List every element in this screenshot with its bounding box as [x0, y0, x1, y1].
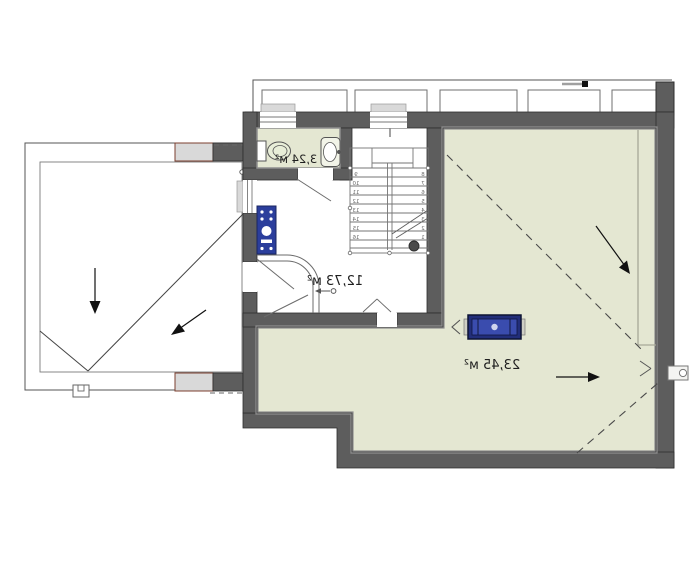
- wall-hall-bottom: [397, 313, 443, 327]
- door-swing-line: [377, 299, 391, 312]
- lower-window-outline: [612, 90, 656, 113]
- window-gap: [260, 112, 296, 128]
- window-gap: [243, 180, 257, 213]
- wall-stair-right: [427, 128, 443, 313]
- wall-stub: [213, 143, 243, 161]
- wall-top: [245, 112, 674, 128]
- hall-area-label: 12,73 м²: [307, 274, 363, 289]
- bathroom-area-label: 3,24 м²: [275, 152, 318, 166]
- step-number: 9: [354, 172, 358, 178]
- drain-scupper: [668, 366, 688, 380]
- door-gap: [243, 262, 257, 292]
- step-number: 1: [421, 235, 425, 241]
- window-gap: [370, 112, 407, 128]
- boiler-dial-icon: [262, 226, 272, 236]
- main-room-area-label: 23,45 м²: [464, 358, 520, 373]
- garage-roof: [25, 143, 245, 397]
- door-swing-line: [363, 299, 377, 312]
- stair-outline: [350, 148, 428, 253]
- door-swing-line: [257, 259, 294, 289]
- dimension-end-marker: [331, 289, 336, 294]
- step-number: 6: [421, 190, 425, 196]
- step-number: 4: [421, 208, 425, 214]
- toilet-tank-icon: [257, 141, 266, 161]
- floor-plan-drawing: 9 10 11 12 13 14 15 16 8 7 6 5 4 3 2 1: [0, 0, 700, 575]
- lower-window-outline: [440, 90, 517, 113]
- washbasin-tap-icon: [337, 150, 341, 154]
- top-band: [253, 80, 674, 115]
- floor-plan-canvas: 9 10 11 12 13 14 15 16 8 7 6 5 4 3 2 1: [0, 0, 700, 575]
- washbasin-bowl-icon: [324, 143, 337, 162]
- step-number: 3: [421, 217, 425, 223]
- boiler-slot-icon: [261, 240, 272, 244]
- wall-right: [656, 112, 674, 468]
- step-number: 8: [421, 172, 425, 178]
- window-sill: [261, 104, 295, 112]
- door-gap: [377, 313, 397, 327]
- drain-scupper-outlet: [679, 369, 686, 376]
- garage-roof-eave: [25, 143, 245, 390]
- wall-corner-block: [656, 82, 674, 115]
- step-number: 11: [353, 190, 360, 196]
- attachment-block: [175, 143, 213, 161]
- boiler: [257, 206, 276, 254]
- attachment-block: [175, 373, 213, 391]
- step-number: 5: [421, 199, 425, 205]
- stair-treads: [350, 168, 428, 248]
- step-number: 7: [421, 181, 425, 187]
- step-number: 14: [352, 217, 359, 223]
- step-number: 15: [352, 226, 359, 232]
- step-number: 10: [352, 181, 359, 187]
- step-number: 13: [352, 208, 359, 214]
- step-number: 12: [353, 199, 360, 205]
- door-swing-line: [297, 179, 331, 201]
- step-number: 16: [352, 235, 359, 241]
- wall-bathroom-bottom: [243, 168, 298, 180]
- stair-newel-post: [409, 241, 419, 251]
- wall-hall-bottom: [243, 313, 377, 327]
- door-gap: [298, 168, 333, 180]
- step-number: 2: [421, 226, 425, 232]
- window-sill: [371, 104, 406, 112]
- dimension-arrow-head: [315, 288, 321, 294]
- roof-window-handle: [491, 324, 497, 330]
- wall-left-segment: [243, 292, 257, 413]
- wall-left-segment: [243, 213, 257, 262]
- lower-window-outline: [528, 90, 600, 113]
- wall-stub: [213, 373, 243, 391]
- window-sill: [237, 181, 243, 212]
- reference-dot: [582, 81, 588, 87]
